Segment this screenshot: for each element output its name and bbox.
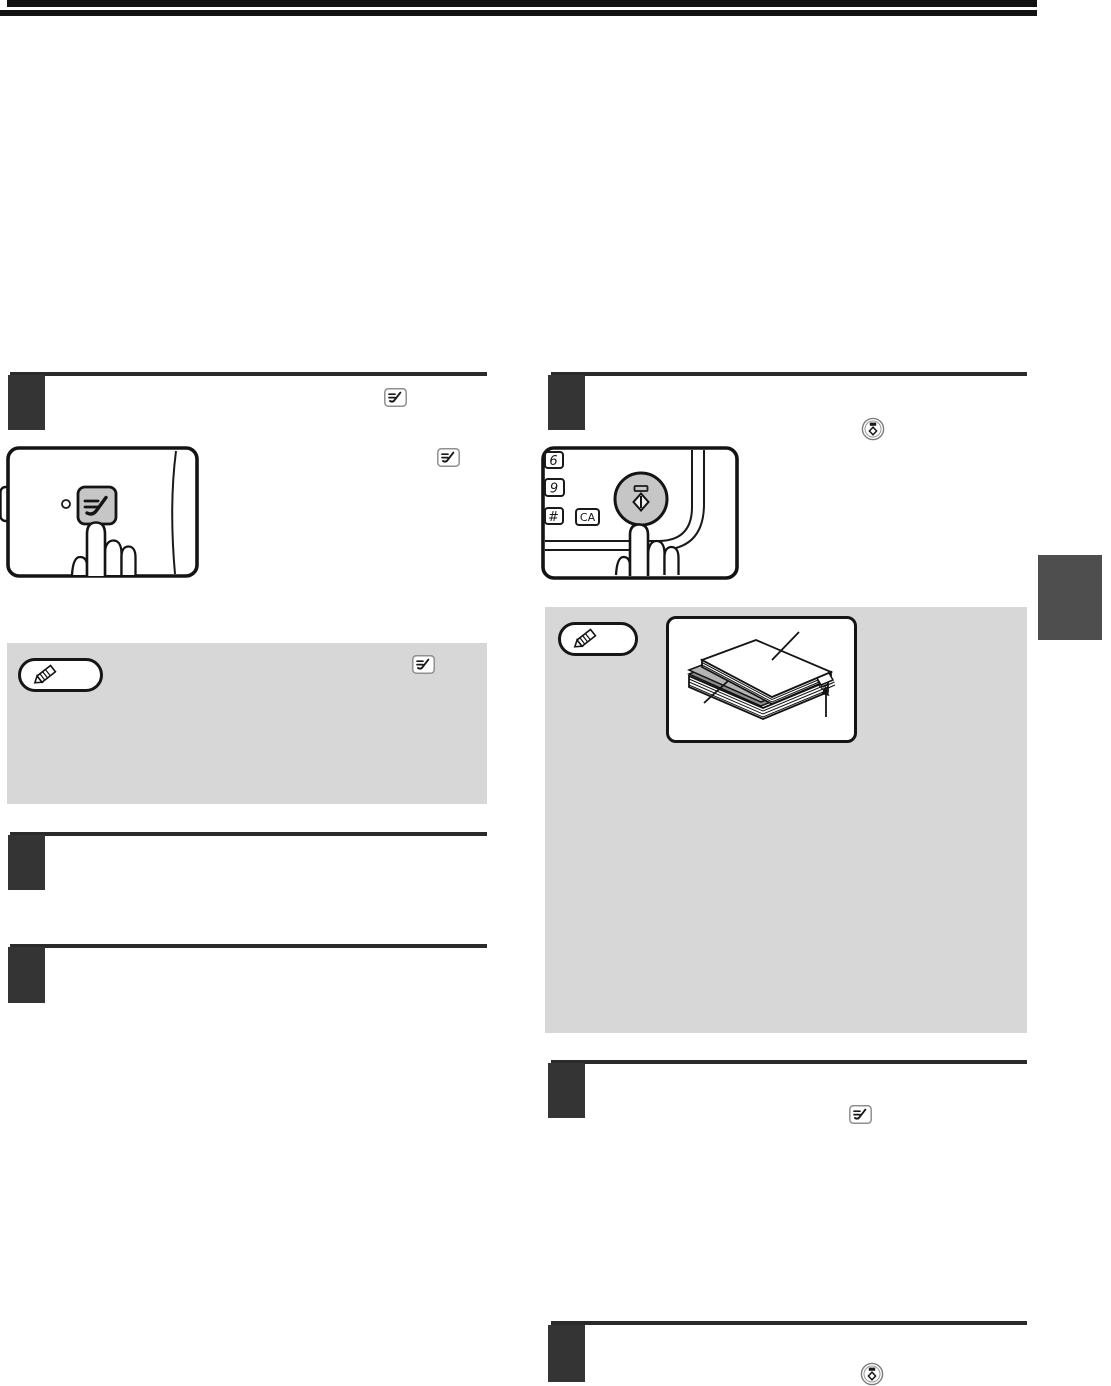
right-step-2-rule xyxy=(551,1060,1027,1064)
left-step-2-number-block xyxy=(8,835,45,890)
start-key-icon xyxy=(861,417,885,441)
left-step-1-rule xyxy=(10,372,487,376)
left-step-3-number-block xyxy=(8,947,45,1003)
left-step-2-rule xyxy=(10,832,487,836)
pencil-icon xyxy=(30,663,60,687)
right-step-3-rule xyxy=(551,1321,1027,1325)
tray-select-button xyxy=(78,487,116,524)
keypad-key-hash-label: # xyxy=(548,510,559,525)
right-step-1-number-block xyxy=(548,375,585,430)
right-step-2-number-block xyxy=(548,1063,585,1118)
start-key-panel-illustration: 6 9 # CA xyxy=(538,444,743,580)
tray-select-key-icon xyxy=(849,1105,872,1124)
keypad-key-9-label: 9 xyxy=(550,482,558,497)
keypad-key-6-label: 6 xyxy=(549,454,557,469)
top-rule-primary xyxy=(7,0,1037,7)
top-rule-secondary xyxy=(0,10,1037,16)
left-step-1-number-block xyxy=(8,375,45,430)
tray-select-key-icon xyxy=(437,448,460,467)
side-page-tab xyxy=(1038,555,1102,640)
note-badge xyxy=(18,658,103,692)
note-badge xyxy=(558,622,638,656)
paper-stack-card xyxy=(666,616,857,743)
pencil-icon xyxy=(570,627,600,651)
left-step-3-rule xyxy=(10,944,487,948)
right-step-3-number-block xyxy=(548,1325,585,1382)
keypad-key-ca-label: CA xyxy=(580,511,596,524)
start-button xyxy=(615,473,667,525)
start-key-icon xyxy=(860,1362,884,1386)
led-indicator xyxy=(62,500,70,508)
paper-stack-illustration xyxy=(669,619,853,739)
control-panel-illustration xyxy=(0,444,205,580)
tray-select-key-icon xyxy=(412,655,435,674)
tray-select-key-icon xyxy=(384,388,407,407)
right-step-1-rule xyxy=(551,372,1027,376)
manual-page: 6 9 # CA xyxy=(0,0,1111,1386)
